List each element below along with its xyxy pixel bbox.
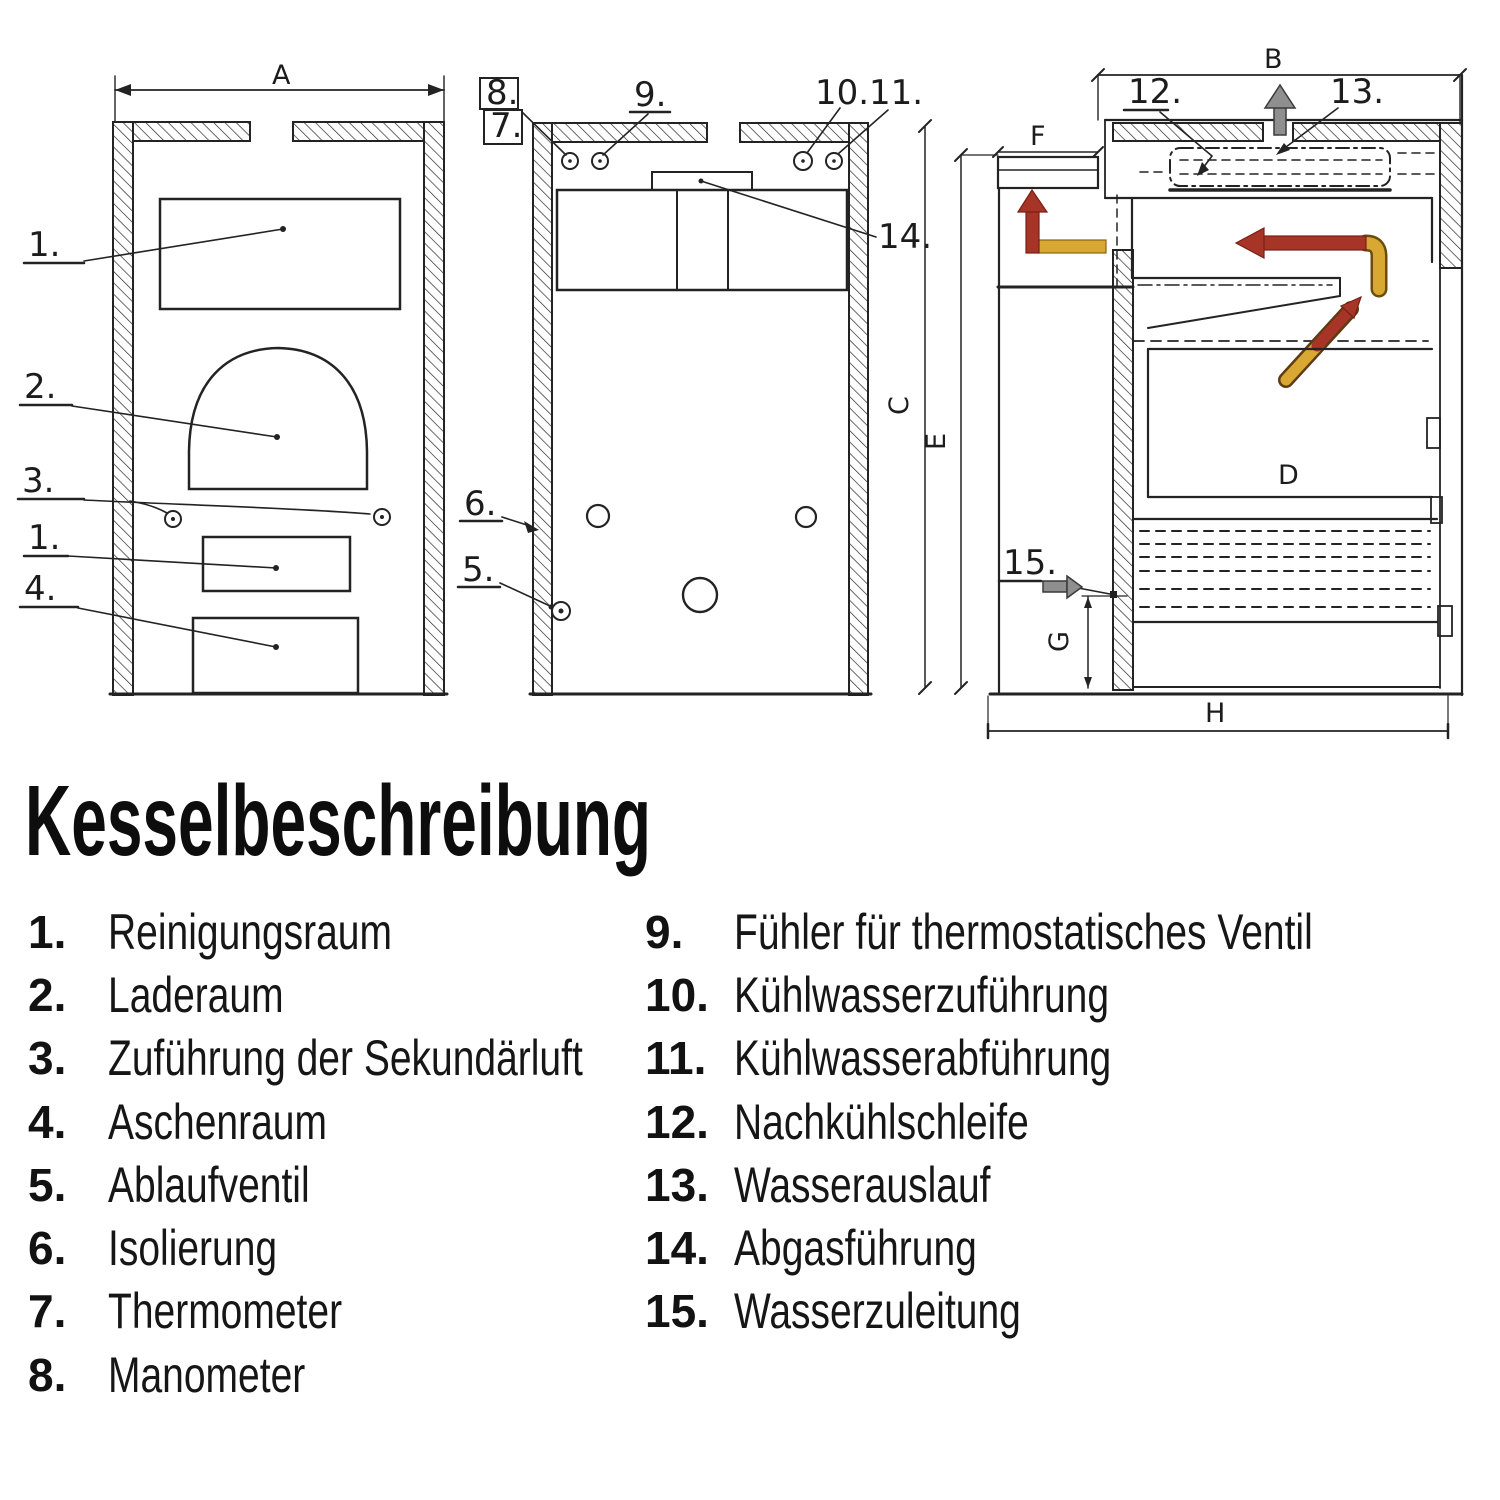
legend-label: Manometer <box>108 1346 305 1404</box>
legend-item-15: 15. Wasserzuleitung <box>645 1280 1495 1343</box>
cooling-water-inlet-port <box>794 152 812 170</box>
legend-number: 12. <box>645 1095 734 1149</box>
legend-label: Isolierung <box>108 1219 277 1277</box>
drawing-side-section: B 12. 13. <box>884 44 1466 738</box>
legend-number: 11. <box>645 1031 734 1085</box>
legend-column-right: 9. Fühler für thermostatisches Ventil 10… <box>645 900 1495 1343</box>
legend-item-11: 11. Kühlwasserabführung <box>645 1027 1495 1090</box>
dim-label-f: F <box>1030 121 1046 152</box>
thermometer-port <box>562 153 578 169</box>
svg-text:12.: 12. <box>1128 72 1182 112</box>
legend-item-9: 9. Fühler für thermostatisches Ventil <box>645 900 1495 963</box>
legend-label: Zuführung der Sekundärluft <box>108 1029 583 1087</box>
svg-text:5.: 5. <box>462 550 494 590</box>
legend-label: Laderaum <box>108 966 284 1024</box>
lower-port <box>683 578 717 612</box>
legend-item-13: 13. Wasserauslauf <box>645 1153 1495 1216</box>
top-wall-insulation-right <box>293 122 424 141</box>
dimension-a: A <box>115 60 444 122</box>
legend-item-1: 1. Reinigungsraum <box>28 900 648 963</box>
left-wall-insulation <box>113 122 133 695</box>
legend-number: 6. <box>28 1221 108 1275</box>
right-wall-insulation <box>849 123 868 695</box>
legend-label: Ablaufventil <box>108 1156 310 1214</box>
svg-text:1.: 1. <box>28 225 60 265</box>
water-outlet-arrow-icon <box>1265 85 1295 135</box>
legend-number: 10. <box>645 968 734 1022</box>
legend-number: 9. <box>645 905 734 959</box>
legend-item-3: 3. Zuführung der Sekundärluft <box>28 1027 648 1090</box>
legend-number: 8. <box>28 1348 108 1402</box>
dim-label-h: H <box>1205 698 1225 729</box>
legend-number: 2. <box>28 968 108 1022</box>
dim-label-g: G <box>1044 631 1075 652</box>
legend-label: Wasserzuleitung <box>734 1282 1021 1340</box>
callout-6: 6. <box>460 484 539 533</box>
sensor-port <box>592 153 608 169</box>
flue-gas-arrow-icon <box>1018 190 1106 253</box>
legend-item-6: 6. Isolierung <box>28 1216 648 1279</box>
drawing-front-view: 8. 7. 9. 10. 11. 14. 6. <box>458 73 932 695</box>
svg-text:6.: 6. <box>464 484 496 524</box>
svg-text:9.: 9. <box>634 75 666 115</box>
rear-flange-upper <box>1427 418 1440 448</box>
rising-gas-flow-arrow-icon <box>1286 297 1361 380</box>
callout-3: 3. <box>18 461 370 514</box>
legend-item-10: 10. Kühlwasserzuführung <box>645 963 1495 1026</box>
cleaning-chamber-lower <box>203 537 350 591</box>
legend-item-8: 8. Manometer <box>28 1343 648 1406</box>
svg-text:4.: 4. <box>24 569 56 609</box>
svg-text:1.: 1. <box>28 518 60 558</box>
dim-label-b: B <box>1264 44 1283 75</box>
legend-number: 1. <box>28 905 108 959</box>
svg-text:2.: 2. <box>24 367 56 407</box>
cooling-water-outlet-port <box>826 153 842 169</box>
svg-text:7.: 7. <box>490 106 522 146</box>
callout-1: 1. <box>24 225 286 265</box>
legend-label: Reinigungsraum <box>108 903 392 961</box>
legend-item-5: 5. Ablaufventil <box>28 1153 648 1216</box>
legend-label: Wasserauslauf <box>734 1156 990 1214</box>
legend-number: 15. <box>645 1284 734 1338</box>
legend-label: Kühlwasserabführung <box>734 1029 1111 1087</box>
hot-gas-flow-arrow-icon <box>1236 228 1379 289</box>
drawing-front-section: A 1. 2. <box>18 60 447 695</box>
callout-2: 2. <box>20 367 280 440</box>
callout-4: 4. <box>20 569 279 650</box>
boiler-description-page: A 1. 2. <box>0 0 1500 1500</box>
legend-label: Aschenraum <box>108 1093 327 1151</box>
dim-label-d: D <box>1278 460 1299 491</box>
legend-number: 13. <box>645 1158 734 1212</box>
svg-text:15.: 15. <box>1003 543 1057 583</box>
legend-number: 7. <box>28 1284 108 1338</box>
secondary-air-opening-right <box>374 509 390 525</box>
upper-door-panel <box>557 190 847 290</box>
svg-text:13.: 13. <box>1330 72 1384 112</box>
legend-label: Thermometer <box>108 1282 342 1340</box>
legend-number: 4. <box>28 1095 108 1149</box>
legend-label: Abgasführung <box>734 1219 977 1277</box>
dimension-e: E <box>921 149 998 694</box>
legend-item-7: 7. Thermometer <box>28 1280 648 1343</box>
legend-label: Nachkühlschleife <box>734 1093 1029 1151</box>
drain-valve-port <box>552 602 570 620</box>
callout-13: 13. <box>1276 72 1384 155</box>
dim-label-a: A <box>272 60 291 91</box>
dim-label-e: E <box>921 433 952 450</box>
legend-item-4: 4. Aschenraum <box>28 1090 648 1153</box>
air-opening-left <box>587 505 609 527</box>
left-wall-insulation <box>533 123 552 695</box>
top-wall-insulation-left <box>133 122 250 141</box>
dim-label-c: C <box>884 396 915 415</box>
ceiling-insulation-left <box>1113 123 1263 141</box>
grate-section <box>1133 519 1437 622</box>
ash-chamber <box>193 618 358 693</box>
svg-text:10.: 10. <box>815 73 869 113</box>
svg-text:3.: 3. <box>22 461 54 501</box>
callout-1b: 1. <box>24 518 279 571</box>
top-wall-insulation-right <box>740 123 849 142</box>
legend-label: Fühler für thermostatisches Ventil <box>734 903 1313 961</box>
loading-chamber-arch <box>189 348 367 489</box>
boiler-technical-drawings: A 1. 2. <box>0 0 1500 770</box>
svg-text:11.: 11. <box>869 73 923 113</box>
top-wall-insulation-left <box>552 123 707 142</box>
legend-label: Kühlwasserzuführung <box>734 966 1109 1024</box>
dimension-h: H <box>988 696 1448 738</box>
cleaning-chamber <box>160 199 400 309</box>
after-cooling-loop-coil <box>1140 148 1434 190</box>
right-wall-insulation <box>424 122 444 695</box>
air-opening-right <box>796 507 816 527</box>
baffle-plate <box>1132 278 1340 328</box>
rear-wall-insulation <box>1440 123 1462 268</box>
legend-column-left: 1. Reinigungsraum 2. Laderaum 3. Zuführu… <box>28 900 648 1406</box>
page-title: Kesselbeschreibung <box>25 771 651 871</box>
legend-item-12: 12. Nachkühlschleife <box>645 1090 1495 1153</box>
svg-text:14.: 14. <box>878 217 932 257</box>
legend-number: 3. <box>28 1031 108 1085</box>
legend-item-14: 14. Abgasführung <box>645 1216 1495 1279</box>
legend-number: 14. <box>645 1221 734 1275</box>
front-wall-insulation <box>1113 250 1133 690</box>
legend-number: 5. <box>28 1158 108 1212</box>
legend-item-2: 2. Laderaum <box>28 963 648 1026</box>
dimension-c: C <box>884 120 931 694</box>
